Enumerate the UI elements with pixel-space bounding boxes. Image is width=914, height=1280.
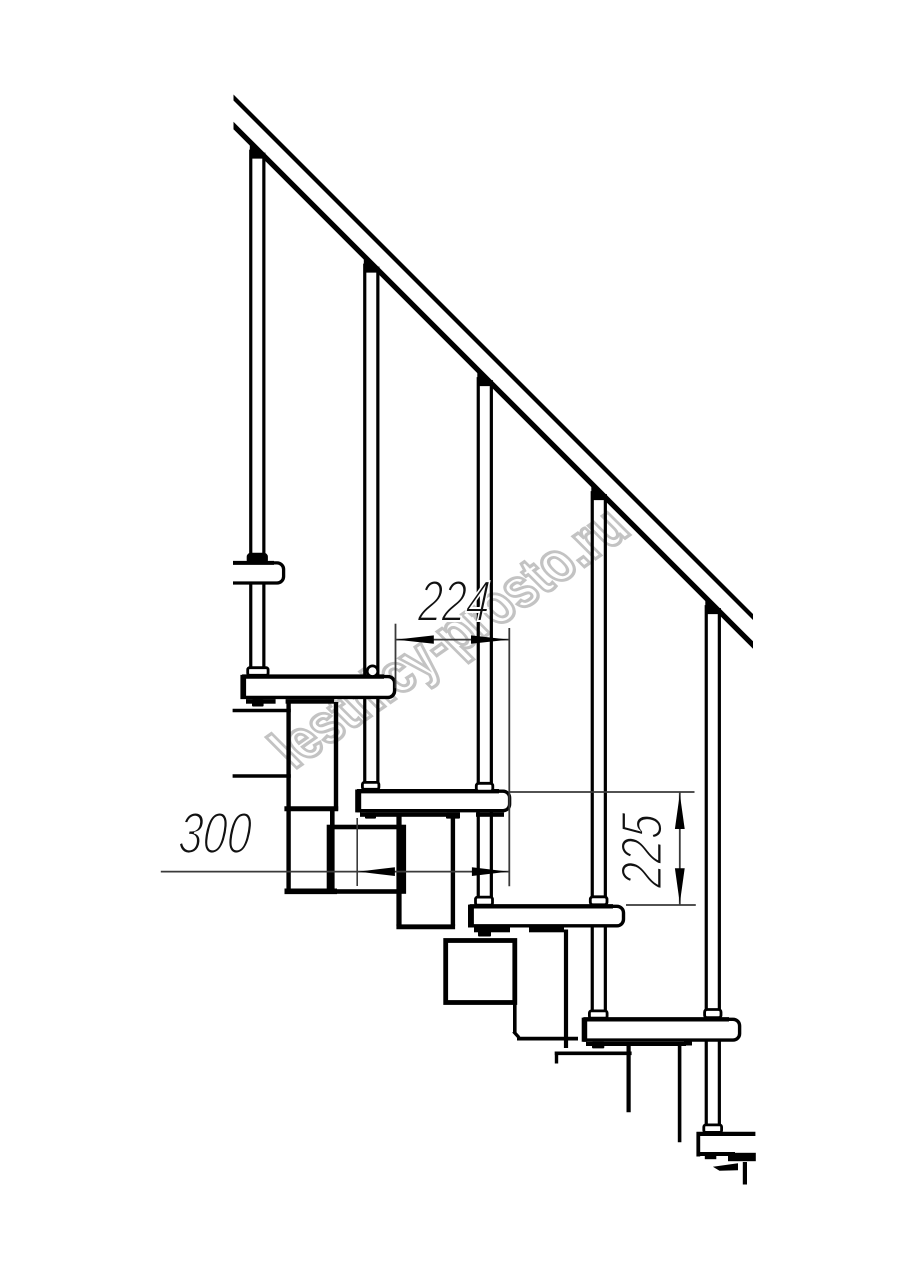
svg-text:225: 225 [609, 811, 674, 890]
svg-text:300: 300 [177, 801, 254, 865]
svg-text:224: 224 [416, 569, 492, 634]
